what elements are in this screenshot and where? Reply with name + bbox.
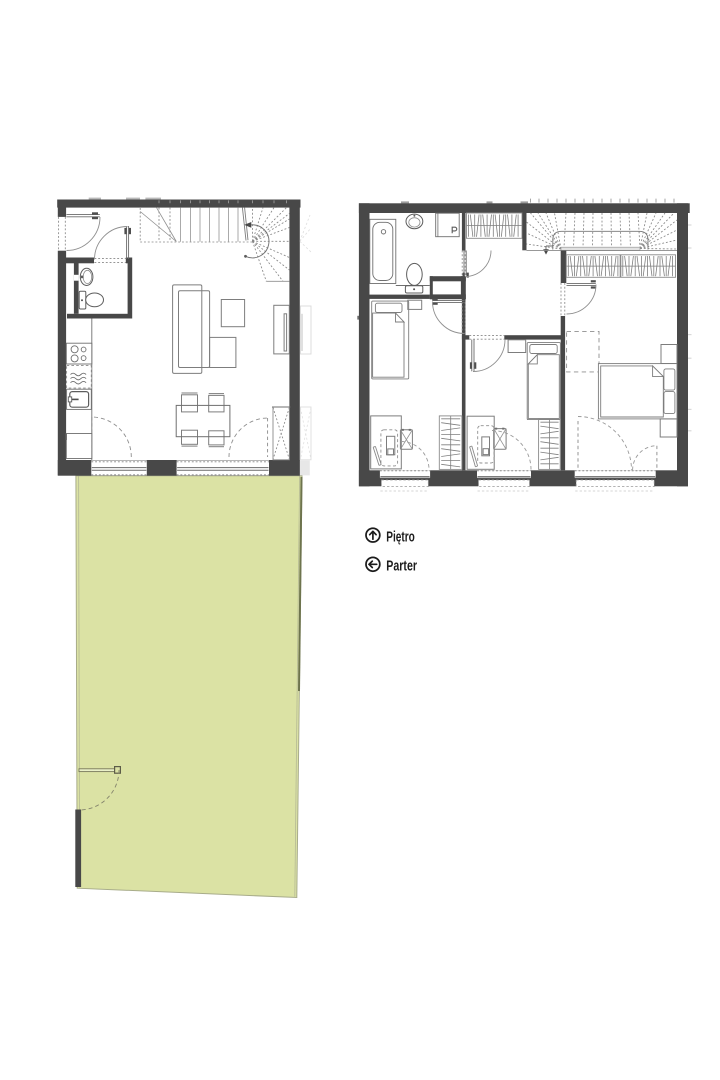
svg-text:Piętro: Piętro [386,529,415,546]
svg-text:Parter: Parter [386,557,417,574]
